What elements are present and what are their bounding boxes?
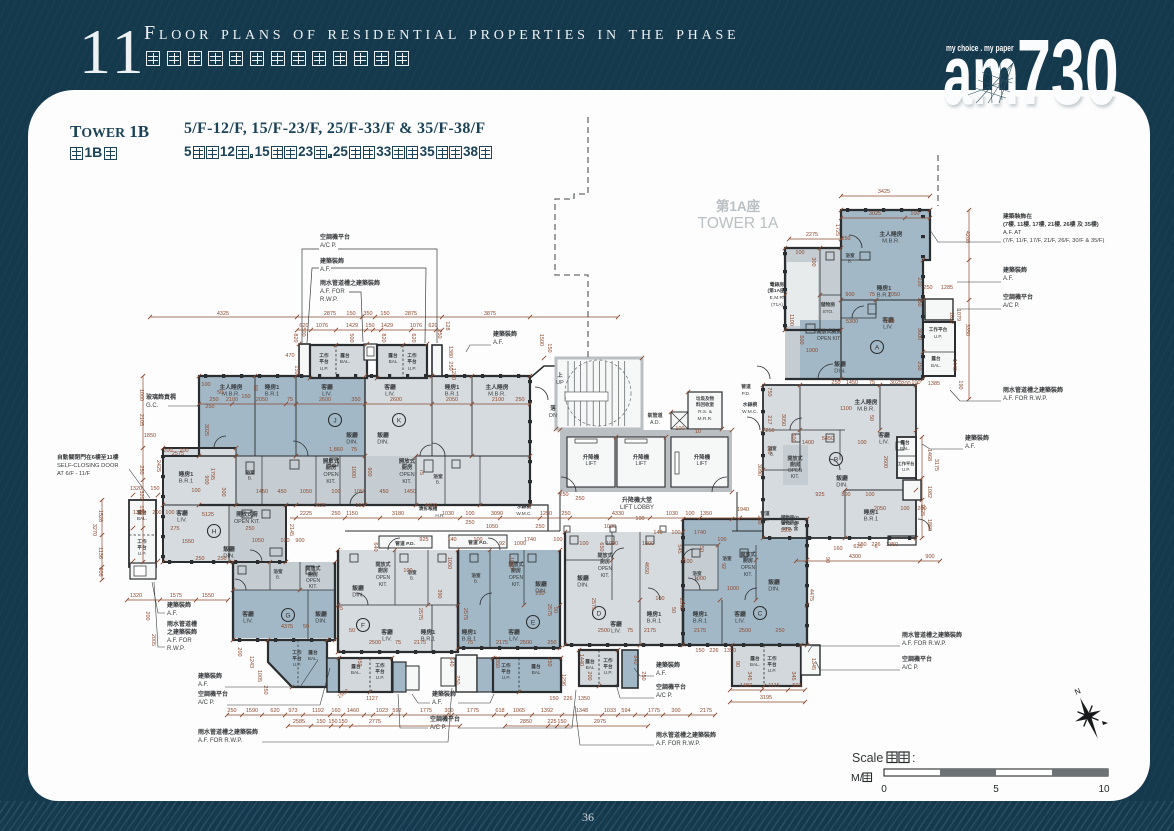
svg-text:A.F.: A.F.: [493, 340, 504, 346]
svg-text:1440: 1440: [578, 654, 584, 666]
svg-text:工作: 工作: [137, 538, 147, 545]
svg-text:睡房1: 睡房1: [445, 383, 461, 391]
svg-text:OPEN: OPEN: [509, 575, 524, 581]
svg-text:1385: 1385: [928, 381, 940, 387]
svg-text:1350: 1350: [724, 648, 736, 654]
svg-text:1860: 1860: [926, 519, 932, 531]
svg-text:A.F. AT: A.F. AT: [1003, 230, 1022, 236]
svg-text:水錶榥: 水錶榥: [742, 401, 758, 408]
svg-text:900: 900: [925, 554, 934, 560]
svg-text:100: 100: [900, 506, 909, 512]
svg-text:200: 200: [144, 611, 150, 620]
svg-text:840: 840: [632, 655, 638, 664]
svg-text:1850: 1850: [144, 433, 156, 439]
svg-text:250: 250: [923, 285, 932, 291]
svg-text:925: 925: [419, 537, 428, 543]
svg-text:DIN.: DIN.: [577, 583, 589, 589]
svg-text:露台: 露台: [340, 352, 350, 359]
svg-text:雨水管道槽之建築裝飾: 雨水管道槽之建築裝飾: [1003, 386, 1063, 394]
svg-text:3625: 3625: [314, 503, 326, 509]
svg-text:BAL.: BAL.: [931, 363, 941, 368]
svg-text:3425: 3425: [878, 189, 890, 195]
svg-text:1,860: 1,860: [329, 447, 343, 453]
svg-text:(7/F, 11/F, 17/F, 21/F, 26/F,: (7/F, 11/F, 17/F, 21/F, 26/F, 30/F & 35/…: [1003, 238, 1104, 244]
svg-text:2500: 2500: [739, 628, 751, 634]
svg-text:2005: 2005: [150, 634, 156, 646]
svg-text:廚房: 廚房: [790, 461, 800, 468]
svg-text:2175: 2175: [700, 708, 712, 714]
svg-text:900: 900: [366, 467, 372, 476]
svg-text:226: 226: [871, 542, 880, 548]
svg-text:LIV.: LIV.: [177, 518, 187, 524]
svg-text:客廳: 客廳: [877, 431, 890, 439]
svg-text:100: 100: [465, 511, 474, 517]
svg-text:3090: 3090: [491, 511, 503, 517]
svg-text:工作: 工作: [375, 662, 385, 669]
svg-text:973: 973: [288, 708, 297, 714]
svg-text:1350: 1350: [494, 656, 500, 668]
svg-text:客廳: 客廳: [175, 509, 188, 517]
svg-text:開放式廚房: 開放式廚房: [816, 328, 841, 335]
svg-text:露台: 露台: [388, 352, 398, 359]
svg-text:第1A座: 第1A座: [716, 198, 761, 214]
svg-text:345: 345: [790, 671, 796, 680]
svg-text:KIT.: KIT.: [791, 474, 800, 480]
svg-text:594: 594: [621, 708, 630, 714]
svg-text:4650: 4650: [643, 562, 649, 574]
svg-text:2050: 2050: [874, 506, 886, 512]
svg-text:150: 150: [316, 719, 325, 725]
svg-text:A/C P.: A/C P.: [320, 243, 337, 249]
svg-text:900: 900: [845, 292, 854, 298]
svg-text:KIT.: KIT.: [326, 479, 335, 485]
svg-text:3025: 3025: [869, 211, 881, 217]
svg-text:250: 250: [515, 397, 524, 403]
svg-text:150: 150: [365, 323, 374, 329]
svg-text:3025: 3025: [890, 380, 902, 386]
svg-text:落: 落: [550, 404, 556, 412]
svg-text:主人睡房: 主人睡房: [879, 230, 902, 238]
svg-text:1050: 1050: [508, 557, 514, 569]
svg-text:A.F. FOR: A.F. FOR: [320, 289, 345, 295]
svg-text:250: 250: [535, 591, 544, 597]
svg-text:客廳: 客廳: [733, 610, 746, 618]
svg-text:A.F.: A.F.: [965, 444, 976, 450]
svg-text:2175: 2175: [496, 640, 508, 646]
svg-text:160: 160: [833, 546, 842, 552]
svg-text:650: 650: [598, 542, 604, 551]
svg-text:E: E: [531, 620, 536, 627]
svg-text:上: 上: [557, 371, 563, 379]
svg-text:90: 90: [734, 661, 740, 667]
svg-text:2050: 2050: [446, 397, 458, 403]
svg-text:M.B.R.: M.B.R.: [857, 407, 875, 413]
svg-text:200: 200: [586, 671, 592, 680]
svg-text:2175: 2175: [644, 628, 656, 634]
svg-text:工作: 工作: [407, 352, 417, 359]
svg-text:露台: 露台: [900, 439, 910, 446]
svg-text:150: 150: [380, 311, 389, 317]
svg-text:1350: 1350: [700, 511, 712, 517]
svg-text:250: 250: [546, 657, 552, 666]
svg-text:640: 640: [372, 542, 378, 551]
svg-text:100: 100: [795, 250, 804, 256]
svg-text:A/C P.: A/C P.: [1003, 303, 1020, 309]
svg-text:1150: 1150: [346, 511, 358, 517]
svg-text:10: 10: [1098, 784, 1110, 795]
svg-text:606: 606: [97, 567, 103, 576]
svg-text:雨水管道槽之建築裝飾: 雨水管道槽之建築裝飾: [656, 731, 716, 739]
svg-text:OPEN: OPEN: [741, 565, 756, 571]
svg-text:1487: 1487: [740, 683, 752, 689]
svg-text:升降機: 升降機: [633, 453, 650, 461]
svg-text:50: 50: [552, 607, 558, 613]
svg-text:2500: 2500: [520, 640, 532, 646]
svg-text:545: 545: [676, 544, 682, 553]
svg-text:1350: 1350: [886, 542, 898, 548]
svg-text:160: 160: [331, 708, 340, 714]
svg-text:3875: 3875: [484, 311, 496, 317]
svg-text:250: 250: [561, 511, 570, 517]
svg-text:自動關閉門在6樓至11樓: 自動關閉門在6樓至11樓: [57, 453, 119, 461]
svg-text:250: 250: [227, 708, 236, 714]
svg-text:1775: 1775: [648, 708, 660, 714]
svg-text:工作: 工作: [292, 649, 302, 656]
svg-text:1030: 1030: [604, 524, 616, 530]
svg-text:U.P.: U.P.: [320, 366, 329, 371]
svg-text:1725: 1725: [834, 224, 840, 236]
svg-text:2425: 2425: [155, 460, 161, 472]
svg-text:E.M.R.: E.M.R.: [770, 295, 785, 301]
svg-text:開放式: 開放式: [399, 457, 416, 465]
svg-text:R.S. &: R.S. &: [698, 409, 713, 415]
svg-text:工作: 工作: [767, 655, 777, 662]
svg-text:睡房1: 睡房1: [265, 383, 281, 391]
svg-text:250: 250: [195, 556, 204, 562]
svg-text:空調機平台: 空調機平台: [198, 690, 228, 698]
svg-text:LIFT LOBBY: LIFT LOBBY: [620, 505, 654, 511]
svg-text:工作平台: 工作平台: [929, 326, 948, 333]
svg-text:150: 150: [557, 719, 566, 725]
svg-text:BAL: BAL: [532, 670, 541, 675]
svg-text:4375: 4375: [281, 624, 293, 630]
svg-text:300: 300: [810, 257, 816, 266]
svg-text:50: 50: [670, 607, 676, 613]
svg-text:儲物房(G: 儲物房(G: [781, 514, 800, 521]
svg-text:DIN.: DIN.: [834, 369, 846, 375]
svg-text:100: 100: [885, 319, 894, 325]
svg-text:升降機: 升降機: [583, 453, 600, 461]
svg-text:250: 250: [209, 397, 218, 403]
svg-text:3600: 3600: [916, 328, 922, 340]
svg-text:300: 300: [220, 487, 226, 496]
svg-text:工作: 工作: [603, 657, 613, 664]
svg-text:2500: 2500: [369, 640, 381, 646]
svg-text:1100: 1100: [840, 406, 852, 412]
svg-text:建築裝飾在: 建築裝飾在: [1002, 212, 1032, 220]
svg-text:250: 250: [217, 556, 226, 562]
svg-text:500: 500: [798, 335, 804, 344]
svg-text:250: 250: [775, 628, 784, 634]
svg-text:250: 250: [465, 520, 474, 526]
svg-text:LIFT: LIFT: [585, 461, 597, 467]
svg-text:2575: 2575: [678, 598, 684, 610]
svg-text:建築裝飾: 建築裝飾: [432, 690, 456, 698]
svg-text:450: 450: [356, 657, 362, 666]
svg-text:F: F: [361, 623, 365, 630]
svg-text:B.: B.: [474, 578, 478, 583]
svg-text:820: 820: [292, 333, 298, 342]
svg-text:2175: 2175: [414, 640, 426, 646]
svg-text:OPEN: OPEN: [376, 575, 391, 581]
svg-text:250: 250: [916, 361, 922, 370]
svg-text:BAL: BAL: [586, 665, 595, 670]
svg-text:100: 100: [635, 516, 644, 522]
svg-text:飯廳: 飯廳: [314, 610, 327, 618]
svg-text:1590: 1590: [246, 708, 258, 714]
svg-text:1000: 1000: [694, 576, 706, 582]
svg-text:OPEN KIT.: OPEN KIT.: [817, 336, 841, 342]
svg-text:4325: 4325: [217, 311, 229, 317]
svg-text:雨水管道槽之建築裝飾: 雨水管道槽之建築裝飾: [902, 631, 962, 639]
svg-text:1079: 1079: [955, 309, 961, 321]
svg-text:1050: 1050: [354, 489, 366, 495]
svg-text:220: 220: [916, 277, 922, 286]
svg-text:M.R.R.: M.R.R.: [698, 416, 713, 422]
svg-text:STO. 含: STO. 含: [782, 520, 799, 527]
svg-text:150: 150: [546, 343, 552, 352]
svg-text:1050: 1050: [486, 524, 498, 530]
svg-text:1775: 1775: [420, 708, 432, 714]
svg-text:LIFT: LIFT: [635, 461, 647, 467]
svg-text:H: H: [212, 529, 217, 536]
svg-text:開放式廚: 開放式廚: [236, 510, 258, 518]
svg-text:620: 620: [270, 708, 279, 714]
svg-text:LIV.: LIV.: [735, 619, 745, 625]
svg-text:100: 100: [331, 489, 340, 495]
svg-text:217: 217: [766, 415, 772, 424]
svg-text:A.F. FOR: A.F. FOR: [167, 638, 192, 644]
svg-text:150: 150: [328, 719, 337, 725]
svg-text:151: 151: [355, 503, 364, 509]
svg-text:1005: 1005: [256, 670, 262, 682]
svg-text:雨水管道槽: 雨水管道槽: [167, 620, 197, 628]
svg-text:5: 5: [993, 784, 999, 795]
svg-text:50: 50: [698, 546, 704, 552]
svg-text:540: 540: [448, 657, 454, 666]
svg-text:LIV.: LIV.: [243, 619, 253, 625]
svg-text:建築裝飾: 建築裝飾: [167, 601, 191, 609]
svg-text:玻璃飾貢榥: 玻璃飾貢榥: [146, 393, 176, 401]
svg-text:管道: 管道: [741, 383, 751, 390]
svg-text:飯廳: 飯廳: [833, 360, 846, 368]
svg-text:KIT.: KIT.: [309, 584, 318, 590]
svg-text:管道 P.D.: 管道 P.D.: [395, 540, 415, 547]
svg-text:900: 900: [203, 475, 209, 484]
svg-text:2585: 2585: [293, 719, 305, 725]
svg-text:2575: 2575: [462, 608, 468, 620]
svg-text:雨水管道槽之建築裝飾: 雨水管道槽之建築裝飾: [198, 728, 258, 736]
svg-text:390: 390: [436, 589, 442, 598]
svg-text:2145: 2145: [288, 524, 294, 536]
svg-text::: :: [912, 751, 915, 765]
svg-text:5450: 5450: [822, 436, 834, 442]
svg-text:露台: 露台: [308, 649, 318, 656]
svg-text:TOWER 1A: TOWER 1A: [698, 215, 779, 232]
svg-text:A.F.: A.F.: [320, 267, 331, 273]
svg-text:1050: 1050: [252, 538, 264, 544]
svg-text:建築裝飾: 建築裝飾: [656, 661, 680, 669]
svg-text:SELF-CLOSING DOOR: SELF-CLOSING DOOR: [57, 463, 119, 469]
svg-text:(7樓, 11樓, 17樓, 21樓, 26樓 及 35樓): (7樓, 11樓, 17樓, 21樓, 26樓 及 35樓): [1003, 220, 1099, 228]
svg-text:1468: 1468: [926, 449, 932, 461]
svg-text:氣管道: 氣管道: [647, 412, 662, 419]
svg-text:A.D.: A.D.: [650, 420, 660, 426]
svg-text:DIN.: DIN.: [346, 440, 358, 446]
svg-text:M.B.R.: M.B.R.: [882, 239, 900, 245]
svg-text:620: 620: [410, 333, 416, 342]
svg-text:92: 92: [499, 541, 505, 547]
svg-text:BAL.: BAL.: [340, 359, 350, 364]
svg-text:2600: 2600: [390, 397, 402, 403]
svg-text:儲物房: 儲物房: [820, 301, 836, 308]
svg-text:工作: 工作: [319, 352, 329, 359]
svg-text:2875: 2875: [324, 311, 336, 317]
svg-text:1065: 1065: [513, 708, 525, 714]
svg-text:10: 10: [695, 429, 701, 435]
svg-text:250: 250: [547, 640, 556, 646]
svg-text:5300: 5300: [846, 319, 858, 325]
svg-text:浴室: 浴室: [433, 473, 443, 480]
svg-text:1050: 1050: [300, 489, 312, 495]
svg-text:B.R.1: B.R.1: [864, 517, 879, 523]
svg-text:睡房1: 睡房1: [179, 470, 195, 478]
svg-text:A.F.: A.F.: [432, 700, 443, 706]
svg-text:升降機: 升降機: [694, 453, 711, 461]
svg-text:250: 250: [331, 511, 340, 517]
svg-text:BAL: BAL: [389, 359, 398, 364]
svg-text:75: 75: [418, 469, 424, 475]
svg-text:2850: 2850: [520, 719, 532, 725]
svg-text:2100: 2100: [492, 397, 504, 403]
svg-text:U.P.: U.P.: [376, 675, 385, 680]
svg-text:睡房1: 睡房1: [877, 284, 893, 292]
svg-text:STO.: STO.: [822, 309, 833, 315]
svg-text:100: 100: [403, 568, 412, 574]
svg-text:客廳: 客廳: [380, 628, 393, 636]
svg-text:1127: 1127: [366, 696, 378, 702]
svg-text:A/C P.: A/C P.: [656, 693, 673, 699]
svg-text:平台: 平台: [137, 544, 147, 551]
svg-text:LIV.: LIV.: [879, 440, 889, 446]
svg-text:350: 350: [363, 311, 372, 317]
svg-text:A.F. FOR R.W.P.: A.F. FOR R.W.P.: [1003, 396, 1048, 402]
svg-text:1320: 1320: [130, 486, 142, 492]
svg-text:620: 620: [428, 323, 437, 329]
svg-text:92: 92: [720, 563, 726, 569]
svg-text:100: 100: [675, 426, 684, 432]
svg-text:226: 226: [563, 696, 572, 702]
svg-text:75: 75: [467, 640, 473, 646]
svg-text:R.W.P.: R.W.P.: [320, 297, 338, 303]
svg-text:1023: 1023: [376, 708, 388, 714]
svg-text:KIT.: KIT.: [379, 582, 388, 588]
svg-text:1243: 1243: [248, 656, 254, 668]
svg-text:3025: 3025: [203, 424, 209, 436]
svg-text:200: 200: [152, 510, 161, 516]
svg-text:345: 345: [746, 671, 752, 680]
svg-text:50: 50: [252, 385, 258, 391]
svg-text:客廳: 客廳: [609, 620, 622, 628]
svg-text:750: 750: [766, 387, 772, 396]
svg-text:客廳: 客廳: [383, 383, 396, 391]
svg-text:1450: 1450: [256, 489, 268, 495]
svg-text:1400: 1400: [802, 440, 814, 446]
svg-text:618: 618: [495, 708, 504, 714]
svg-text:A.F.: A.F.: [167, 611, 178, 617]
svg-text:250: 250: [765, 428, 774, 434]
svg-text:OPEN: OPEN: [399, 472, 414, 478]
svg-text:1429: 1429: [346, 323, 358, 329]
svg-text:2600: 2600: [319, 397, 331, 403]
svg-text:1450: 1450: [846, 380, 858, 386]
svg-text:50: 50: [349, 628, 355, 634]
svg-text:睡房1: 睡房1: [693, 610, 709, 618]
svg-text:0: 0: [881, 784, 887, 795]
svg-text:2975: 2975: [594, 719, 606, 725]
svg-text:2575: 2575: [590, 598, 596, 610]
svg-text:浴室: 浴室: [722, 555, 732, 562]
svg-text:250: 250: [756, 515, 762, 524]
svg-text:OPEN: OPEN: [323, 472, 338, 478]
svg-text:1100: 1100: [788, 314, 794, 326]
svg-text:100: 100: [910, 211, 919, 217]
svg-text:75: 75: [287, 397, 293, 403]
svg-text:B.R.1: B.R.1: [693, 619, 708, 625]
svg-text:250: 250: [559, 492, 568, 498]
svg-text:飯廳: 飯廳: [222, 545, 235, 553]
svg-text:A/C P.: A/C P.: [902, 665, 919, 671]
svg-text:G: G: [285, 613, 290, 620]
svg-text:75: 75: [869, 380, 875, 386]
svg-text:工作平台: 工作平台: [898, 460, 915, 467]
svg-text:KIT.: KIT.: [512, 582, 521, 588]
svg-text:593: 593: [792, 683, 801, 689]
svg-text:1940: 1940: [737, 507, 749, 513]
svg-text:450: 450: [277, 489, 286, 495]
svg-text:1000: 1000: [514, 541, 526, 547]
svg-text:1429: 1429: [381, 323, 393, 329]
svg-text:平台: 平台: [292, 655, 302, 662]
svg-text:雨水管道槽之建築裝飾: 雨水管道槽之建築裝飾: [320, 279, 380, 287]
svg-text:75: 75: [351, 447, 357, 453]
svg-text:U.P.: U.P.: [138, 551, 147, 556]
svg-text:飯廳: 飯廳: [835, 474, 848, 482]
svg-text:露台: 露台: [585, 658, 595, 665]
svg-text:DIN.: DIN.: [377, 440, 389, 446]
svg-text:廚房: 廚房: [308, 571, 318, 578]
svg-text:之建築裝飾: 之建築裝飾: [167, 628, 197, 636]
svg-text:OPEN KIT.: OPEN KIT.: [234, 519, 260, 525]
svg-text:1800: 1800: [642, 541, 654, 547]
svg-text:Scale: Scale: [852, 751, 883, 765]
svg-text:100: 100: [579, 541, 588, 547]
svg-text:1082: 1082: [926, 486, 932, 498]
svg-text:飯廳: 飯廳: [345, 431, 358, 439]
svg-text:150: 150: [695, 648, 704, 654]
svg-text:2575: 2575: [417, 608, 423, 620]
svg-text:100: 100: [165, 510, 174, 516]
